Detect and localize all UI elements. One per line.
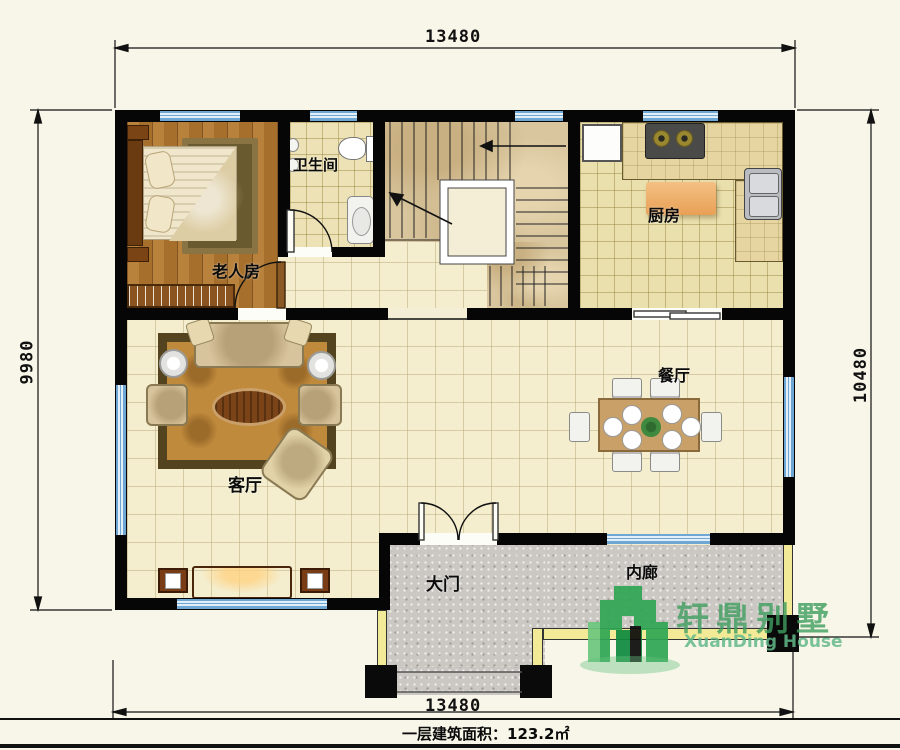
porch-curb-center	[532, 628, 543, 668]
wall-hall-bottom-b	[497, 533, 607, 545]
dining-chair	[650, 451, 680, 472]
logo-name-en: XuanDing House	[684, 632, 843, 652]
plate	[662, 430, 682, 450]
armchair-left	[146, 384, 188, 426]
stove-burner-left	[653, 130, 670, 147]
wall-mid-b	[286, 308, 388, 320]
fridge	[582, 124, 622, 162]
bathroom-door-threshold	[288, 247, 332, 257]
wall-hall-bottom-c	[710, 533, 783, 545]
wall-right	[783, 110, 795, 545]
title-block-rule-bottom	[0, 744, 900, 748]
area-note: 一层建筑面积：123.2㎡	[402, 723, 569, 744]
sink-basin-1	[749, 173, 779, 194]
floor-lamp-right	[307, 351, 336, 380]
toilet-bowl	[338, 137, 366, 160]
porch-column-center	[520, 665, 552, 698]
bedroom-door-threshold	[238, 308, 286, 320]
entrance-threshold	[420, 533, 497, 545]
stair-floor-upper	[385, 122, 568, 242]
room-label-bathroom: 卫生间	[293, 154, 338, 175]
dimension-left: 9980	[17, 340, 37, 385]
stair-floor-lower	[487, 242, 568, 308]
wardrobe	[127, 284, 235, 308]
wall-bath-stair	[373, 122, 385, 257]
speaker-right	[300, 568, 330, 593]
room-label-dining: 餐厅	[658, 362, 690, 386]
room-label-kitchen: 厨房	[648, 202, 680, 226]
wall-kitchen-bottom-b	[722, 308, 783, 320]
window-bedroom	[160, 111, 240, 121]
window-dining-right	[784, 377, 794, 477]
wall-porch-stub	[379, 533, 390, 610]
dimension-top: 13480	[425, 27, 481, 47]
dimension-bottom: 13480	[425, 696, 481, 716]
bed-headboard	[127, 140, 143, 246]
wall-bedroom-bath	[278, 122, 290, 257]
window-corridor	[607, 534, 710, 544]
porch-steps-floor	[397, 667, 522, 695]
dining-chair	[612, 451, 642, 472]
hall-passage	[388, 308, 467, 320]
floor-lamp-left	[159, 349, 188, 378]
speaker-left	[158, 568, 188, 593]
tv-console	[192, 566, 292, 599]
dining-chair	[612, 378, 642, 399]
kitchen-sink	[744, 168, 782, 220]
title-block-rule-top	[0, 718, 900, 720]
wall-stair-kitchen	[568, 122, 580, 320]
dining-chair	[701, 412, 722, 442]
room-label-living: 客厅	[228, 471, 262, 496]
porch-floor-center	[387, 545, 545, 667]
wall-mid-c	[467, 308, 568, 320]
dining-table	[598, 398, 700, 452]
coffee-table	[212, 388, 286, 426]
kitchen-door-threshold	[632, 308, 722, 320]
nightstand-bottom	[127, 247, 149, 262]
plate	[603, 417, 623, 437]
speaker-cone	[307, 573, 323, 589]
porch-curb-left	[377, 610, 387, 668]
window-living-bottom	[177, 599, 327, 609]
wall-hall-bottom-a	[390, 533, 420, 545]
wall-left	[115, 110, 127, 610]
room-label-bedroom: 老人房	[212, 258, 260, 282]
dimension-right: 10480	[851, 347, 871, 403]
nightstand-top	[127, 125, 149, 140]
bathroom-vanity	[347, 196, 374, 244]
floor-plan-sheet: 老人房 卫生间 厨房 餐厅 客厅 大门 内廊 13480 13480 9980 …	[0, 0, 900, 750]
wall-kitchen-bottom-a	[580, 308, 632, 320]
sofa	[194, 322, 304, 368]
porch-column-left	[365, 665, 397, 698]
plate	[622, 430, 642, 450]
speaker-cone	[165, 573, 181, 589]
room-label-corridor: 内廊	[626, 559, 658, 583]
window-bathroom	[310, 111, 357, 121]
wall-bath-bottom-a	[278, 247, 288, 257]
vanity-basin	[352, 207, 371, 236]
gas-stove	[645, 123, 705, 159]
dining-chair	[569, 412, 590, 442]
window-kitchen	[643, 111, 718, 121]
armchair-right	[298, 384, 342, 426]
sink-basin-2	[749, 196, 779, 217]
plate	[681, 417, 701, 437]
stove-burner-right	[676, 130, 693, 147]
window-living-left	[116, 385, 126, 535]
table-plant	[641, 417, 661, 437]
window-stair	[515, 111, 563, 121]
plate	[662, 404, 682, 424]
plate	[622, 405, 642, 425]
wall-mid-a	[115, 308, 238, 320]
room-label-entrance: 大门	[426, 570, 460, 595]
